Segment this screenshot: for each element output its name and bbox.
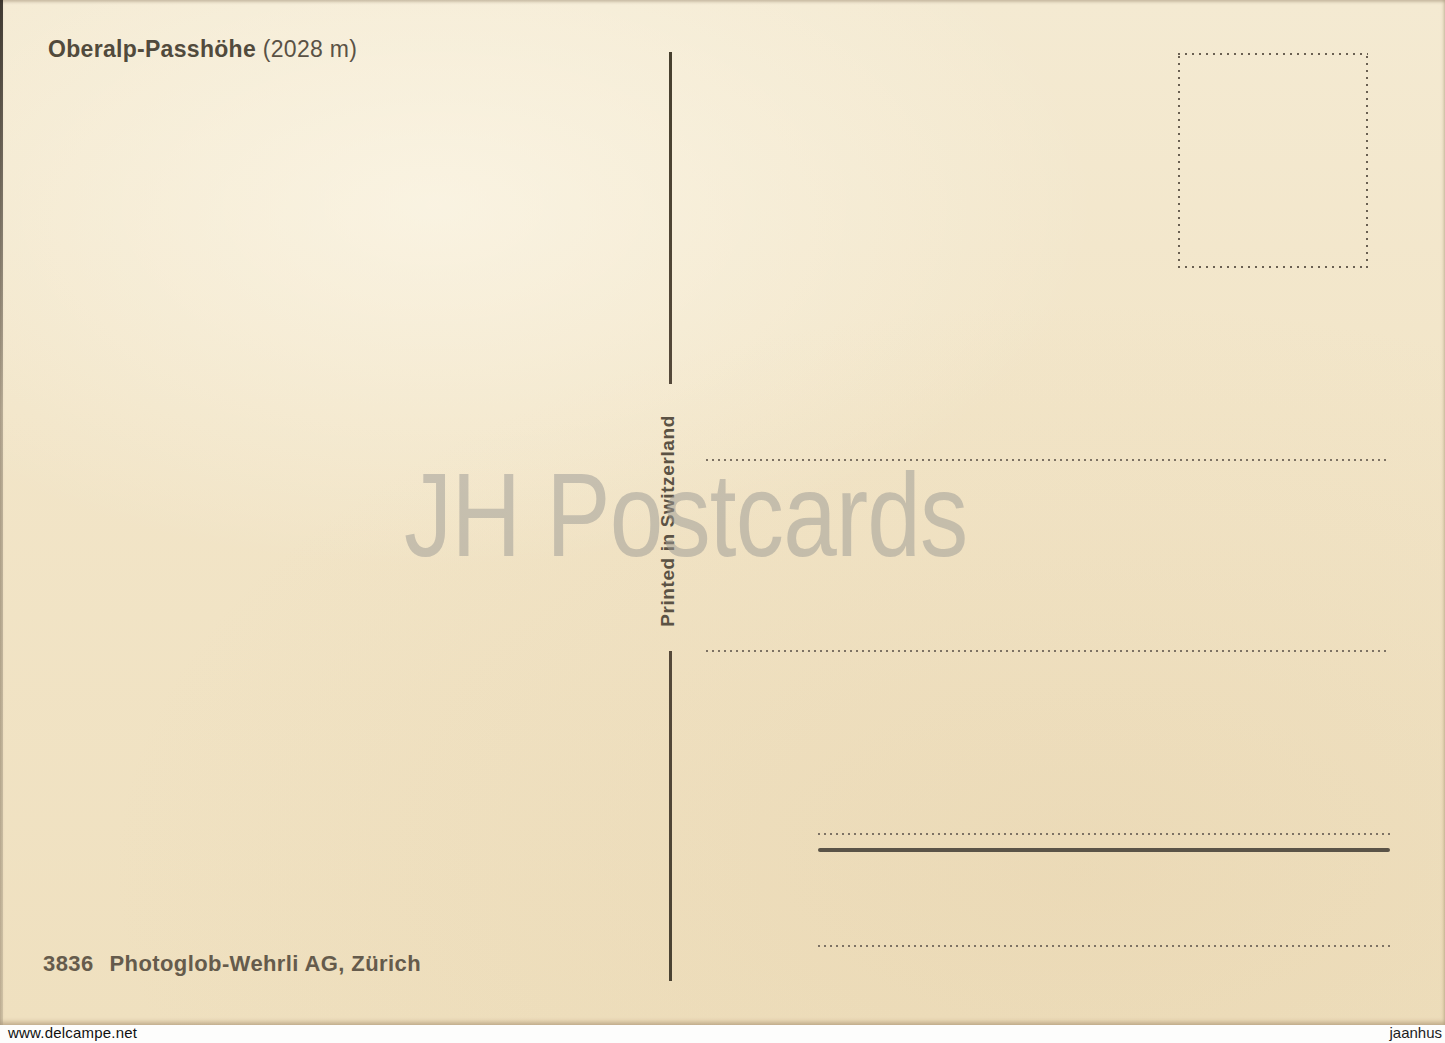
address-line-1 bbox=[706, 459, 1390, 461]
postcard-scan: Oberalp-Passhöhe (2028 m) Printed in Swi… bbox=[0, 0, 1445, 1043]
card-title-elevation: (2028 m) bbox=[263, 36, 357, 62]
divider-line-top bbox=[669, 52, 672, 384]
publisher-line: 3836 Photoglob-Wehrli AG, Zürich bbox=[43, 951, 421, 977]
address-line-solid bbox=[818, 848, 1390, 852]
card-title-name: Oberalp-Passhöhe bbox=[48, 36, 256, 62]
stamp-box bbox=[1178, 53, 1368, 268]
jaanhus-watermark: jaanhus bbox=[1389, 1024, 1442, 1041]
publisher-number: 3836 bbox=[43, 951, 94, 977]
jh-postcards-watermark: JH Postcards bbox=[404, 455, 967, 574]
address-line-4 bbox=[818, 945, 1390, 947]
divider-line-bottom bbox=[669, 651, 672, 981]
card-left-edge bbox=[0, 0, 3, 1025]
address-line-2 bbox=[706, 650, 1390, 652]
card-title: Oberalp-Passhöhe (2028 m) bbox=[48, 37, 357, 62]
printed-in-switzerland-note: Printed in Switzerland bbox=[657, 415, 679, 627]
delcampe-watermark: www.delcampe.net bbox=[8, 1024, 137, 1041]
publisher-name: Photoglob-Wehrli AG, Zürich bbox=[110, 951, 421, 977]
address-line-3 bbox=[818, 833, 1390, 835]
postcard-back: Oberalp-Passhöhe (2028 m) Printed in Swi… bbox=[0, 0, 1445, 1025]
